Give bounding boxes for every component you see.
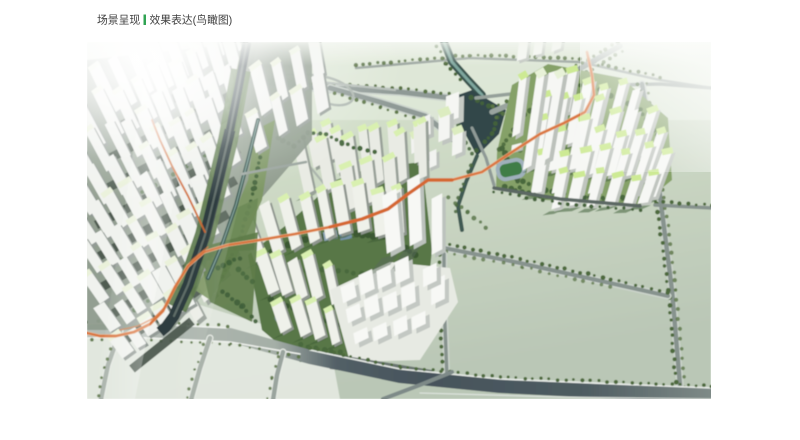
svg-text:效果表达(鸟瞰图): 效果表达(鸟瞰图) [150, 13, 233, 27]
svg-text:场景呈现: 场景呈现 [97, 13, 140, 27]
